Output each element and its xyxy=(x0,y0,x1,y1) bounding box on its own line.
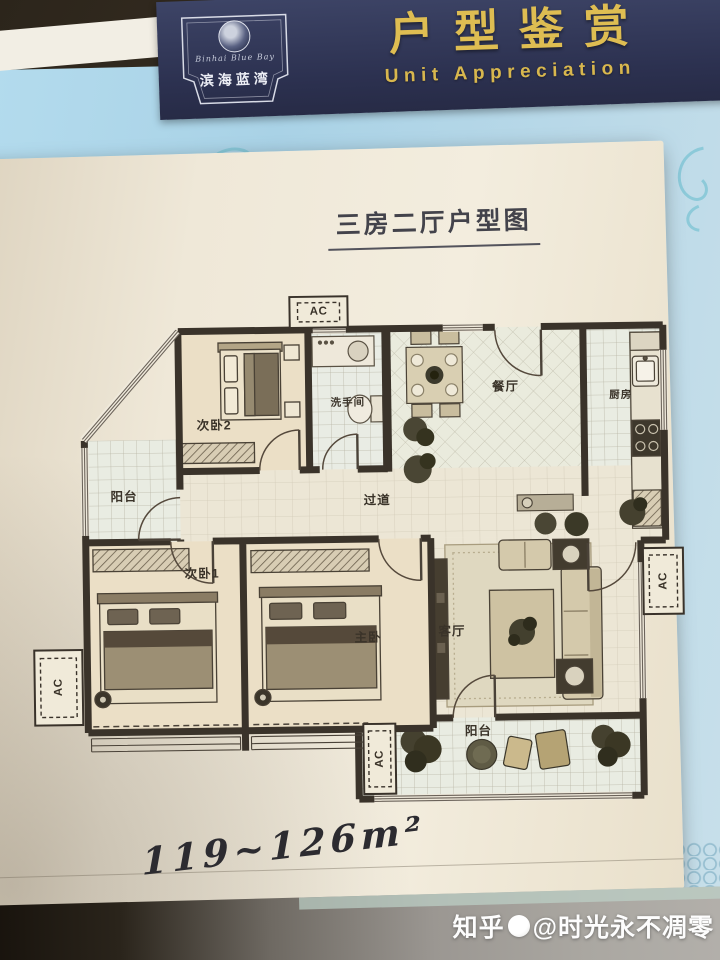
brochure-photo: Binhai Blue Bay 滨海蓝湾 户型鉴赏 Unit Appreciat… xyxy=(0,0,720,960)
room-label-balcony-left: 阳台 xyxy=(110,486,137,505)
room-label-living-room: 客厅 xyxy=(438,620,465,639)
decorative-swirl-icon xyxy=(667,142,715,235)
ac-label-top: AC xyxy=(310,306,328,318)
brand-badge: Binhai Blue Bay 滨海蓝湾 xyxy=(179,11,292,107)
zhihu-logo-icon xyxy=(508,915,530,937)
watermark-site: 知乎 xyxy=(453,908,505,944)
room-label-dining: 餐厅 xyxy=(492,375,519,394)
plan-title: 三房二厅户型图 xyxy=(327,200,540,251)
plan-labels: 次卧2 洗手间 餐厅 厨房 过道 阳台 次卧1 主卧 客厅 阳台 AC AC A… xyxy=(17,289,704,828)
room-label-kitchen: 厨房 xyxy=(609,387,632,402)
brand-name: 滨海蓝湾 xyxy=(181,67,292,91)
room-label-bathroom: 洗手间 xyxy=(330,395,365,410)
room-label-bedroom1: 次卧1 xyxy=(185,563,220,582)
watermark-handle: @时光永不凋零 xyxy=(533,908,714,944)
watermark: 知乎 @时光永不凋零 xyxy=(453,908,714,944)
paper-fold-line xyxy=(0,858,683,878)
header-band: Binhai Blue Bay 滨海蓝湾 户型鉴赏 Unit Appreciat… xyxy=(156,0,720,120)
floor-plan-sheet: 三房二厅户型图 xyxy=(0,140,684,907)
ac-label-bottom: AC xyxy=(374,750,386,768)
ac-label-left: AC xyxy=(53,678,65,696)
ac-label-right: AC xyxy=(657,572,669,590)
floor-plan: 次卧2 洗手间 餐厅 厨房 过道 阳台 次卧1 主卧 客厅 阳台 AC AC A… xyxy=(17,289,704,828)
room-label-hallway: 过道 xyxy=(364,489,391,508)
room-label-bedroom2: 次卧2 xyxy=(196,414,231,433)
room-label-balcony-bottom: 阳台 xyxy=(465,720,492,739)
room-label-master-bedroom: 主卧 xyxy=(354,626,381,645)
